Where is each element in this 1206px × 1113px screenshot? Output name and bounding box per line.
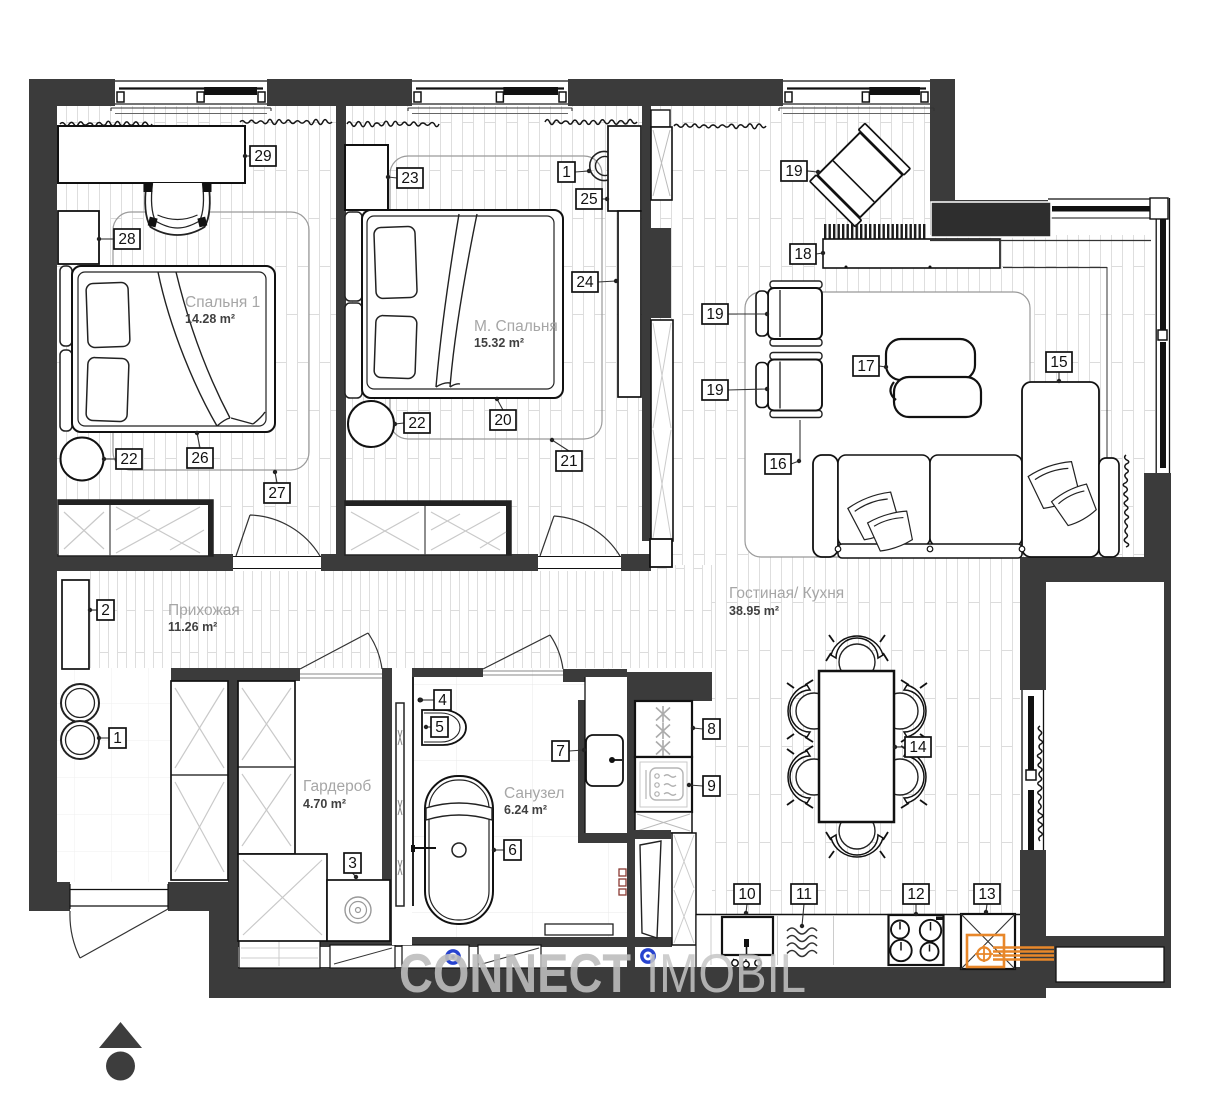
svg-text:Гардероб: Гардероб xyxy=(303,778,371,795)
svg-text:24: 24 xyxy=(576,274,594,291)
svg-text:12: 12 xyxy=(907,886,924,903)
svg-text:17: 17 xyxy=(857,358,874,375)
svg-text:10: 10 xyxy=(738,886,756,903)
svg-text:27: 27 xyxy=(268,485,285,502)
svg-text:1: 1 xyxy=(562,164,571,181)
svg-text:Санузел: Санузел xyxy=(504,785,564,802)
svg-text:1: 1 xyxy=(113,730,122,747)
svg-text:25: 25 xyxy=(580,191,597,208)
svg-text:5: 5 xyxy=(435,719,444,736)
svg-text:14.28 m²: 14.28 m² xyxy=(185,312,235,326)
svg-text:4: 4 xyxy=(438,692,447,709)
svg-text:21: 21 xyxy=(560,453,577,470)
svg-text:8: 8 xyxy=(707,721,716,738)
svg-text:19: 19 xyxy=(706,382,723,399)
svg-text:6.24 m²: 6.24 m² xyxy=(504,803,547,817)
svg-text:38.95 m²: 38.95 m² xyxy=(729,604,779,618)
svg-text:26: 26 xyxy=(191,450,208,467)
svg-text:19: 19 xyxy=(706,306,723,323)
svg-text:4.70 m²: 4.70 m² xyxy=(303,797,346,811)
svg-text:16: 16 xyxy=(769,456,786,473)
svg-text:11: 11 xyxy=(796,886,812,903)
svg-text:Гостиная/ Кухня: Гостиная/ Кухня xyxy=(729,585,844,602)
svg-text:2: 2 xyxy=(101,602,110,619)
svg-text:22: 22 xyxy=(408,415,425,432)
svg-text:28: 28 xyxy=(118,231,135,248)
svg-text:3: 3 xyxy=(348,855,357,872)
svg-text:11.26 m²: 11.26 m² xyxy=(168,620,217,634)
svg-text:15: 15 xyxy=(1050,354,1067,371)
svg-text:14: 14 xyxy=(909,739,927,756)
svg-text:Спальня 1: Спальня 1 xyxy=(185,294,260,311)
svg-text:20: 20 xyxy=(494,412,512,429)
svg-text:IMOBIL: IMOBIL xyxy=(646,942,806,1004)
svg-text:22: 22 xyxy=(120,451,137,468)
svg-text:13: 13 xyxy=(978,886,995,903)
svg-text:23: 23 xyxy=(401,170,418,187)
svg-text:9: 9 xyxy=(707,778,716,795)
svg-text:18: 18 xyxy=(794,246,811,263)
svg-text:7: 7 xyxy=(556,743,565,760)
svg-text:15.32 m²: 15.32 m² xyxy=(474,336,524,350)
svg-text:CONNECT: CONNECT xyxy=(399,942,631,1004)
svg-text:М. Спальня: М. Спальня xyxy=(474,318,558,335)
svg-text:6: 6 xyxy=(508,842,517,859)
svg-text:Прихожая: Прихожая xyxy=(168,602,240,619)
svg-text:29: 29 xyxy=(254,148,271,165)
svg-text:19: 19 xyxy=(785,163,802,180)
